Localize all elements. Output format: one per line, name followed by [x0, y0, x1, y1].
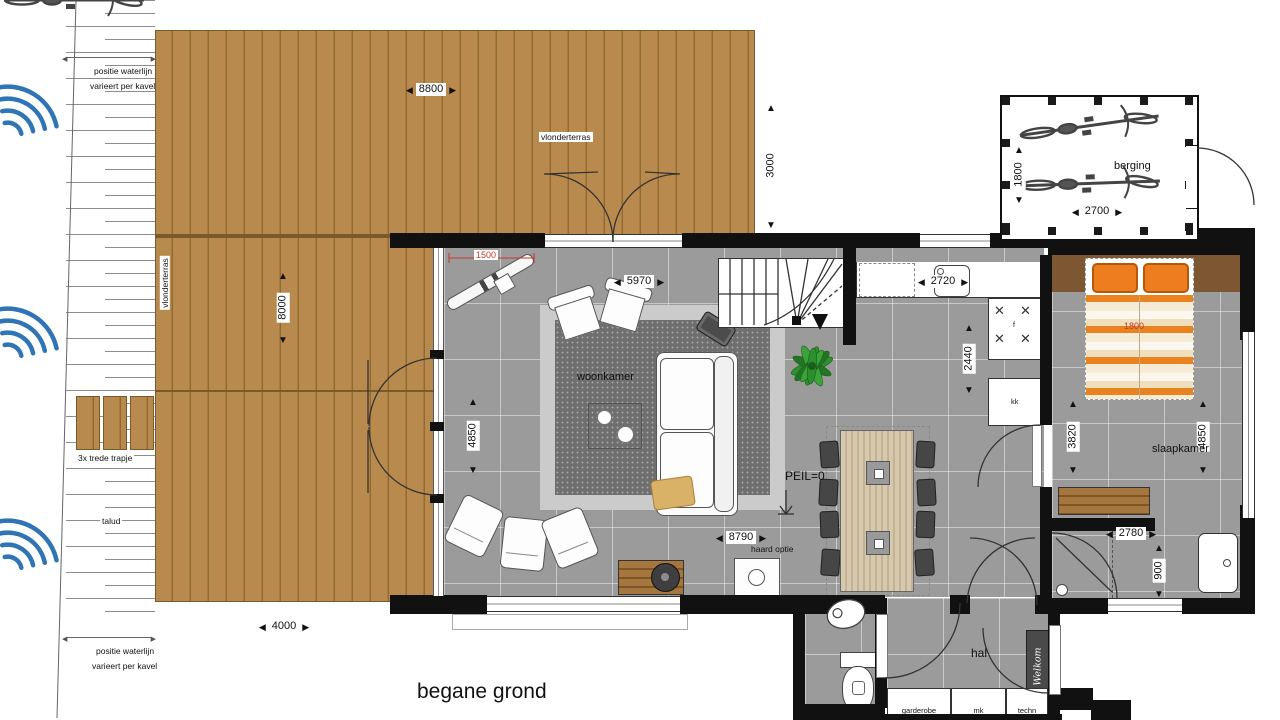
- shed-door: [1186, 145, 1197, 209]
- dim-red-offset: 1500: [474, 250, 498, 260]
- doormat-text: Welkom: [1033, 647, 1044, 685]
- bedroom-door-leaf: [1032, 425, 1042, 487]
- candle-tray: [866, 531, 890, 555]
- window: [487, 596, 680, 612]
- bed-width-dim: 1800: [1124, 321, 1144, 331]
- bedroom-bench: [1058, 487, 1150, 515]
- wall: [843, 233, 856, 345]
- waterline-note: positie waterlijn: [92, 66, 154, 76]
- burner-icon: [1020, 304, 1031, 317]
- candle-tray: [866, 461, 890, 485]
- dim-arrow-down-icon: [278, 330, 288, 348]
- dim-living-width: 5970: [601, 272, 677, 290]
- wall: [390, 233, 545, 248]
- dim-arrow-up-icon: [1014, 140, 1024, 158]
- level-label: PEIL=0: [785, 469, 825, 483]
- dim-living-total: 8790: [703, 528, 779, 546]
- wall: [1052, 598, 1108, 614]
- dim-arrow-down-icon: [766, 215, 776, 233]
- dim-arrow-left-icon: [1072, 202, 1079, 220]
- wall: [880, 714, 1062, 720]
- front-door: [1049, 625, 1061, 695]
- washbasin: [1198, 533, 1238, 593]
- dim-arrow-up-icon: [964, 318, 974, 336]
- dim-arrow-down-icon: [1014, 190, 1024, 208]
- dim-storage-depth: 1800: [1008, 140, 1030, 208]
- garden-steps: [76, 396, 100, 450]
- deck-terrace: [155, 30, 755, 235]
- bed: 1800: [1085, 258, 1194, 400]
- fridge-cabinet: kk: [988, 378, 1042, 426]
- dim-deck-side: 8000: [272, 266, 294, 348]
- coffee-table: [588, 403, 642, 449]
- dim-arrow-down-icon: [1068, 460, 1078, 478]
- waterline-arrow: [62, 632, 156, 642]
- water-wave-icon: [0, 487, 64, 578]
- door-jamb: [430, 422, 444, 431]
- plate: [597, 410, 612, 425]
- deck-seam: [155, 390, 440, 392]
- wall: [1240, 505, 1255, 610]
- dim-arrow-left-icon: [918, 272, 925, 290]
- dim-deck-width: 8800: [393, 80, 469, 98]
- waterline-note: varieert per kavel: [90, 661, 159, 671]
- wall: [1060, 688, 1093, 710]
- dim-arrow-right-icon: [657, 272, 664, 290]
- dim-arrow-down-icon: [468, 460, 478, 478]
- wall: [1040, 487, 1052, 532]
- dining-chair: [914, 548, 935, 576]
- wall: [793, 704, 885, 720]
- dim-arrow-right-icon: [1115, 202, 1122, 220]
- window: [920, 234, 990, 248]
- wall: [1091, 700, 1131, 720]
- wall: [682, 233, 920, 248]
- cooktop-label: f: [1013, 322, 1015, 329]
- wall: [1240, 255, 1255, 340]
- waterline-arrow: [62, 52, 156, 62]
- door-jamb: [430, 494, 444, 503]
- wall: [680, 595, 885, 614]
- burner-icon: [994, 304, 1005, 317]
- page-title: begane grond: [417, 680, 547, 704]
- hall-label: hal: [971, 646, 987, 660]
- dim-arrow-right-icon: [759, 528, 766, 546]
- dim-arrow-left-icon: [259, 617, 266, 635]
- dim-living-depth: 4850: [462, 392, 484, 478]
- deck-terrace-side: [155, 235, 440, 602]
- dim-arrow-right-icon: [302, 617, 309, 635]
- fireplace: [734, 558, 780, 598]
- staircase: [718, 258, 845, 328]
- dim-arrow-up-icon: [468, 392, 478, 410]
- dining-chair: [916, 511, 936, 539]
- dim-arrow-up-icon: [1068, 394, 1078, 412]
- dim-arrow-down-icon: [964, 380, 974, 398]
- dining-chair: [820, 511, 840, 539]
- living-label: woonkamer: [577, 371, 634, 383]
- deck-door-frame: [545, 234, 682, 248]
- waterline-note: positie waterlijn: [94, 646, 156, 656]
- shower-drain: [1056, 584, 1068, 596]
- dim-bedroom-b: 4850: [1192, 394, 1214, 478]
- dim-bath-depth: 900: [1148, 538, 1170, 602]
- dim-arrow-down-icon: [1154, 584, 1164, 602]
- stove: [651, 563, 680, 592]
- water-wave-icon: [0, 275, 64, 366]
- dim-arrow-up-icon: [1154, 538, 1164, 556]
- garden-steps: [103, 396, 127, 450]
- window-sill: [452, 614, 688, 630]
- dining-chair: [916, 479, 936, 507]
- waterline-note: varieert per kavel: [88, 81, 157, 91]
- bed-pillow: [1092, 263, 1138, 293]
- dim-arrow-down-icon: [1198, 460, 1208, 478]
- dining-chair: [915, 441, 935, 469]
- dim-arrow-right-icon: [961, 272, 968, 290]
- dim-storage-width: 2700: [1057, 202, 1137, 220]
- fridge-label: kk: [1011, 397, 1019, 406]
- water-wave-icon: [0, 53, 64, 144]
- talud-label: talud: [100, 516, 122, 526]
- dining-table: [840, 430, 914, 592]
- dim-arrow-left-icon: [614, 272, 621, 290]
- dim-arrow-up-icon: [766, 98, 776, 116]
- deck-label: vlonderterras: [539, 132, 593, 142]
- plate: [617, 426, 634, 443]
- dining-chair: [820, 548, 841, 576]
- bed-pillow: [1143, 263, 1189, 293]
- bedroom-label: slaapkamer: [1152, 443, 1209, 455]
- stove-bench: [618, 560, 684, 595]
- dim-kitchen-depth: 2440: [958, 318, 980, 398]
- burner-icon: [1020, 332, 1031, 345]
- wall: [390, 595, 487, 614]
- dim-bedroom-a: 3820: [1062, 394, 1084, 478]
- deck-label-vertical: vlonderterras: [160, 256, 170, 310]
- dim-arrow-up-icon: [1198, 394, 1208, 412]
- wall: [1040, 255, 1052, 425]
- sofa-pillow: [650, 475, 696, 511]
- wall: [1040, 532, 1052, 598]
- door-jamb: [430, 350, 444, 359]
- dim-kitchen-width: 2720: [905, 272, 981, 290]
- storage-label: berging: [1114, 160, 1151, 172]
- wall: [793, 598, 805, 710]
- garden-steps: [130, 396, 154, 450]
- window: [1242, 332, 1255, 518]
- burner-icon: [994, 332, 1005, 345]
- cooktop: f: [988, 298, 1042, 360]
- dim-arrow-right-icon: [449, 80, 456, 98]
- dim-arrow-up-icon: [278, 266, 288, 284]
- dim-arrow-left-icon: [406, 80, 413, 98]
- dim-deck-depth: 3000: [760, 98, 782, 233]
- toilet-door: [876, 614, 888, 678]
- dim-deck-bottom: 4000: [242, 617, 326, 635]
- floor-plan: positie waterlijn varieert per kavel pos…: [0, 0, 1280, 720]
- window: [1108, 598, 1182, 612]
- dining-chair: [819, 440, 840, 468]
- dim-arrow-left-icon: [716, 528, 723, 546]
- wall: [950, 595, 970, 614]
- steps-label: 3x trede trapje: [76, 453, 134, 463]
- dim-arrow-left-icon: [1106, 524, 1113, 542]
